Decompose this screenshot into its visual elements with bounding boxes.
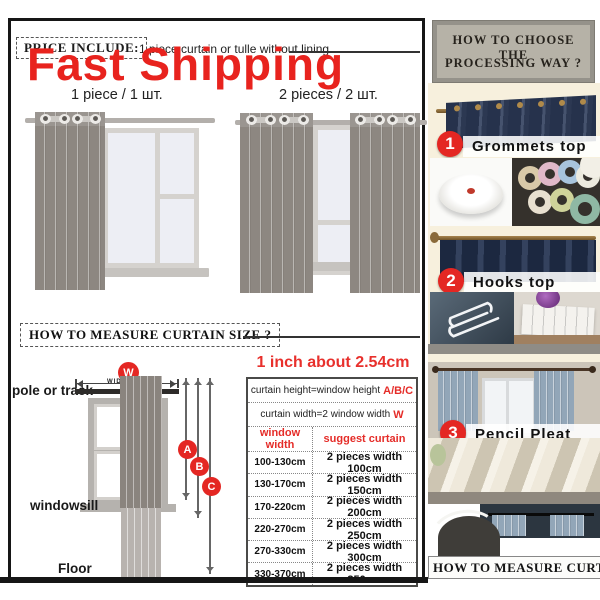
measure-curtain-top bbox=[120, 376, 162, 508]
floor-texture bbox=[514, 335, 600, 344]
windowsill-label: windowsill bbox=[30, 498, 98, 513]
grommet-icon bbox=[72, 114, 83, 124]
grommet-icon bbox=[279, 115, 290, 125]
product-infographic: PRICE INCLUDE: 1 piece curtain or tulle … bbox=[0, 0, 600, 600]
header-tape-photo bbox=[514, 292, 600, 344]
windowsill-graphic bbox=[97, 268, 209, 277]
table-row: 220-270cm 2 pieces width 250cm bbox=[248, 519, 416, 541]
rod-finial-icon bbox=[589, 366, 596, 373]
grommet-icon bbox=[475, 104, 481, 110]
processing-title-line2: PROCESSING WAY ? bbox=[437, 56, 590, 71]
grommet-icon bbox=[246, 115, 257, 125]
grommet-icon bbox=[387, 115, 398, 125]
footer-header-box: HOW TO MEASURE CURTAI bbox=[428, 556, 600, 579]
grommet-icon bbox=[405, 115, 416, 125]
processing-header: HOW TO CHOOSE THE PROCESSING WAY ? bbox=[432, 20, 595, 83]
grommet-icon bbox=[265, 115, 276, 125]
cell-suggest-curtain: 2 pieces width 100cm bbox=[312, 452, 416, 473]
floor-label: Floor bbox=[58, 561, 92, 576]
hooks-section: Hooks top 2 bbox=[428, 230, 600, 344]
pleat-tape-photo bbox=[428, 438, 600, 492]
window-pane bbox=[108, 133, 155, 263]
col-suggest-curtain: suggest curtain bbox=[312, 427, 416, 451]
cell-suggest-curtain: 2 pieces width 250cm bbox=[312, 519, 416, 540]
hooks-photo bbox=[430, 292, 514, 344]
step2-badge: 2 bbox=[438, 268, 464, 294]
table-row: 270-330cm 2 pieces width 300cm bbox=[248, 541, 416, 563]
step1-badge: 1 bbox=[437, 131, 463, 157]
rule1-mark: A/B/C bbox=[383, 385, 413, 397]
section-divider bbox=[428, 344, 600, 354]
grommets-top-label: Grommets top bbox=[463, 136, 600, 157]
measure-line-c bbox=[209, 378, 211, 574]
tape-roll-hole bbox=[467, 188, 475, 194]
short-curtain-graphic bbox=[550, 515, 584, 536]
cell-suggest-curtain: 2 pieces width 300cm bbox=[312, 541, 416, 562]
window-graphic bbox=[103, 128, 199, 268]
section-divider bbox=[428, 492, 600, 504]
grommet-icon bbox=[496, 103, 502, 109]
cell-window-width: 270-330cm bbox=[248, 546, 312, 557]
grommet-rings-photo bbox=[512, 158, 600, 226]
arrow-tick bbox=[177, 379, 179, 388]
processing-header-inner: HOW TO CHOOSE THE PROCESSING WAY ? bbox=[437, 25, 590, 78]
table-header-row: window width suggest curtain bbox=[248, 427, 416, 452]
grommet-icon bbox=[40, 114, 51, 124]
bottom-photo-row bbox=[428, 504, 600, 538]
inch-note: 1 inch about 2.54cm bbox=[248, 354, 418, 372]
measure-line-b bbox=[197, 378, 199, 518]
window-pane bbox=[160, 133, 194, 194]
tape-strip-graphic bbox=[521, 304, 594, 338]
pleat-curtain-graphic bbox=[534, 371, 574, 431]
grommet-icon bbox=[355, 115, 366, 125]
measure-section-title: HOW TO MEASURE CURTAIN SIZE ? bbox=[20, 323, 280, 347]
grommets-section: Grommets top 1 bbox=[428, 83, 600, 230]
measure-curtain-bottom bbox=[121, 508, 161, 577]
window-pane bbox=[318, 130, 352, 220]
cell-window-width: 170-220cm bbox=[248, 502, 312, 513]
window-pane bbox=[160, 199, 194, 263]
table-rule-row: curtain height=window height A/B/C bbox=[248, 379, 416, 403]
table-row: 170-220cm 2 pieces width 200cm bbox=[248, 497, 416, 519]
badge-c: C bbox=[202, 477, 221, 496]
rule2-mark: W bbox=[393, 409, 403, 421]
grommet-icon bbox=[538, 101, 544, 107]
col-window-width: window width bbox=[248, 427, 312, 451]
grommet-icon bbox=[454, 105, 460, 111]
grommet-icon bbox=[298, 115, 309, 125]
leaf-graphic bbox=[430, 444, 446, 466]
grommet-icon bbox=[90, 114, 101, 124]
size-table: curtain height=window height A/B/C curta… bbox=[246, 377, 418, 587]
rod-finial-icon bbox=[430, 232, 439, 243]
one-piece-illustration bbox=[19, 99, 219, 299]
footer-header-text: HOW TO MEASURE CURTAI bbox=[429, 560, 600, 576]
cell-window-width: 130-170cm bbox=[248, 479, 312, 490]
cell-suggest-curtain: 2 pieces width 150cm bbox=[312, 474, 416, 495]
pencil-pleat-section: Pencil Pleat 3 bbox=[428, 354, 600, 504]
cell-window-width: 100-130cm bbox=[248, 457, 312, 468]
grommet-icon bbox=[559, 100, 565, 106]
hooks-top-label: Hooks top bbox=[464, 272, 600, 293]
curtain-panel-graphic bbox=[35, 112, 105, 290]
grommet-icon bbox=[374, 115, 385, 125]
rule2-text: curtain width=2 window width bbox=[260, 409, 390, 420]
rule1-text: curtain height=window height bbox=[251, 385, 380, 396]
measure-rule-line bbox=[243, 336, 420, 338]
badge-a: A bbox=[178, 440, 197, 459]
ring-icon bbox=[570, 194, 600, 224]
left-panel-frame: PRICE INCLUDE: 1 piece curtain or tulle … bbox=[8, 18, 425, 580]
curtain-panel-graphic bbox=[240, 113, 313, 293]
grommet-icon bbox=[580, 99, 586, 105]
curtain-hook-icon bbox=[430, 292, 514, 344]
two-pieces-illustration bbox=[231, 99, 431, 299]
fast-shipping-banner: Fast Shipping bbox=[27, 37, 344, 91]
table-row: 100-130cm 2 pieces width 100cm bbox=[248, 452, 416, 474]
tape-roll-graphic bbox=[439, 174, 503, 214]
grommet-icon bbox=[517, 102, 523, 108]
ring-icon bbox=[528, 190, 552, 214]
table-rule-row: curtain width=2 window width W bbox=[248, 403, 416, 427]
badge-b: B bbox=[190, 457, 209, 476]
table-row: 130-170cm 2 pieces width 150cm bbox=[248, 474, 416, 496]
curtain-panel-graphic bbox=[350, 113, 420, 293]
processing-column: HOW TO CHOOSE THE PROCESSING WAY ? Gromm… bbox=[428, 0, 600, 600]
grommet-tape-photo bbox=[430, 158, 512, 226]
cell-window-width: 220-270cm bbox=[248, 524, 312, 535]
cell-suggest-curtain: 2 pieces width 200cm bbox=[312, 497, 416, 518]
grommet-icon bbox=[59, 114, 70, 124]
measure-line-a bbox=[185, 378, 187, 500]
